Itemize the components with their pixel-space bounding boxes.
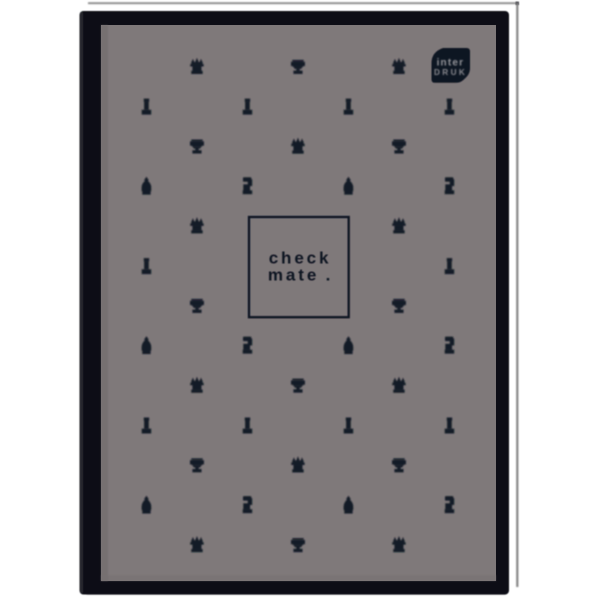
- svg-text:mate: mate: [268, 265, 319, 284]
- svg-text:DRUK: DRUK: [434, 68, 467, 77]
- svg-text:inter: inter: [437, 58, 465, 69]
- svg-text:.: .: [326, 265, 331, 284]
